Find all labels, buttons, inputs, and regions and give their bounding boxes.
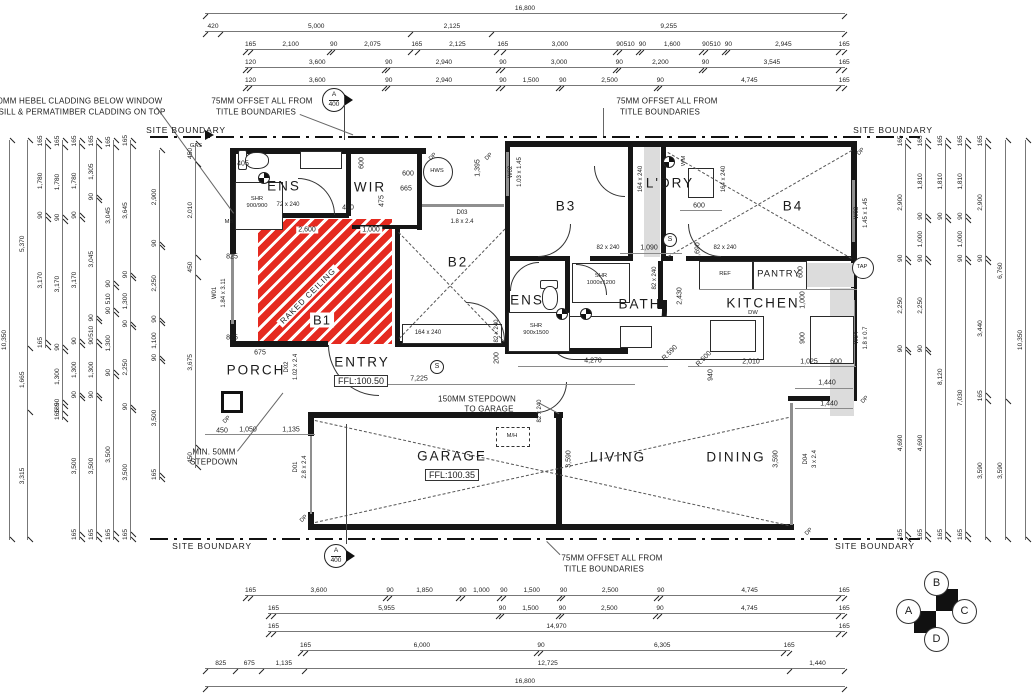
dim-value: 2,010 — [186, 164, 195, 257]
dimension-column: 1653,170901,780165 — [36, 140, 46, 348]
smoke-alarm-marker: S — [663, 233, 677, 247]
floor-waste-icon — [663, 156, 675, 168]
dim-value: 165 — [53, 140, 62, 147]
dim-value: 10,350 — [1016, 140, 1025, 540]
dim-value: 90 — [104, 283, 113, 287]
dim-value: 3,675 — [186, 277, 195, 447]
inner-dim: 600 — [359, 157, 366, 169]
dimension-column: 1657,030901,000901,810165 — [956, 140, 966, 540]
dim-value: 4,745 — [660, 604, 839, 613]
dim-value: 1,810 — [956, 146, 965, 216]
dim-value: 3,170 — [70, 219, 79, 342]
dim-value: 2,900 — [896, 146, 905, 258]
inner-dim: 900 — [800, 332, 807, 344]
downpipe-label: DP — [222, 415, 232, 425]
shower-label: SHR — [595, 273, 607, 279]
dim-value: 3,500 — [87, 398, 96, 533]
dim-value: 2,250 — [916, 262, 925, 349]
door-leaf-size: 82 x 240 — [713, 245, 736, 251]
inner-dim: 600 — [830, 359, 842, 366]
dim-value: 165 — [104, 140, 113, 147]
room-pantry: PANTRY — [757, 269, 801, 280]
dim-value: 165 — [896, 140, 905, 146]
dimension-column: 1654,690902,250902,900165 — [896, 140, 906, 540]
window-w04: W04 — [854, 332, 860, 344]
shower-size: 900x1500 — [523, 330, 548, 336]
shower-label: SHR — [251, 196, 263, 202]
hws-label: HWS — [430, 168, 444, 174]
inner-dim: 1,690 — [695, 242, 702, 260]
wall — [308, 524, 794, 530]
offset-note-bottom-line2: TITLE BOUNDARIES — [564, 565, 644, 574]
dimension-column: 10,350 — [0, 140, 10, 540]
dimension-column: 1653,500901,30090510903,045901,305165 — [87, 140, 97, 540]
floor-waste-icon — [556, 308, 568, 320]
dim-value: 14,970 — [274, 622, 839, 631]
section-letter: A — [329, 91, 339, 100]
section-cut-line — [346, 424, 347, 544]
dim-value: 6,305 — [541, 641, 784, 650]
dim-value: 5,955 — [274, 604, 499, 613]
room-ldry: L'DRY — [646, 176, 694, 191]
elevation-d: D — [924, 627, 949, 652]
inner-dim: 675 — [254, 350, 266, 357]
dim-value: 2,075 — [333, 40, 411, 49]
dimension-column: 165185901,300903,170901,780165 — [53, 140, 63, 420]
site-boundary-line-bottom — [150, 538, 920, 540]
door-swing-arc — [328, 345, 379, 396]
dim-value: 4,745 — [660, 76, 839, 85]
dimension-column: 1653,500901,30090510903,045165 — [104, 140, 114, 540]
room-kitchen: KITCHEN — [726, 296, 799, 311]
dim-value: 2,945 — [728, 40, 839, 49]
dimension-row: 4205,0002,1259,255 — [205, 22, 845, 32]
dimension-column: 3,5901653,440902,900165 — [976, 140, 986, 540]
door-d04: D04 — [803, 453, 809, 464]
dimension-row: 8256751,13512,7251,440 — [205, 659, 845, 669]
dim-value: 10,350 — [0, 140, 9, 540]
section-number: 400 — [329, 101, 340, 109]
dim-value: 3,500 — [121, 410, 130, 534]
dim-value: 1,300 — [53, 351, 62, 403]
dimension-row: 16,800 — [205, 4, 845, 14]
dimension-row: 16514,970165 — [268, 622, 845, 632]
elevation-c: C — [952, 599, 977, 624]
window-w01: W01 — [212, 287, 218, 299]
dim-value: 1,000 — [463, 586, 501, 595]
dim-value: 1,810 — [916, 146, 925, 216]
vanity-ens1 — [300, 151, 342, 169]
floor-plan-canvas: A400 A400 B A C D 50MM HEBEL CLADDING BE… — [0, 0, 1033, 693]
dim-value: 1,500 — [502, 604, 559, 613]
dim-value: 2,250 — [150, 247, 159, 320]
dim-value: 1,440 — [790, 659, 845, 668]
dw-label: DW — [748, 310, 758, 316]
wall — [505, 141, 857, 147]
dim-value: 510 — [706, 40, 725, 49]
dim-value: 165 — [839, 76, 845, 85]
dim-value: 90 — [104, 372, 113, 376]
dim-value: 1,100 — [150, 323, 159, 359]
inner-dim: 665 — [400, 186, 412, 193]
inner-dim: 405 — [237, 161, 249, 168]
dim-value: 3,045 — [104, 147, 113, 283]
dim-value: 16,800 — [205, 4, 845, 13]
dim-line — [620, 253, 682, 254]
inner-dim: 940 — [708, 369, 715, 381]
door-swing-arc — [538, 224, 571, 257]
garage-stepdown-note-line1: 150MM STEPDOWN — [438, 395, 516, 404]
dim-value: 90 — [916, 216, 925, 219]
toilet-pan — [542, 286, 558, 310]
dim-value: 510 — [620, 40, 639, 49]
leader-line — [300, 114, 354, 135]
offset-note-topleft-line1: 75MM OFFSET ALL FROM — [211, 97, 312, 106]
dim-value: 3,600 — [251, 586, 386, 595]
dim-value: 90 — [104, 310, 113, 314]
dim-value: 3,500 — [150, 361, 159, 474]
dim-value: 1,300 — [87, 345, 96, 395]
dim-value: 1,850 — [390, 586, 459, 595]
window-w01-size: 1.84 x 3.11 — [221, 278, 227, 307]
dim-value: 165 — [70, 534, 79, 540]
dim-value: 165 — [956, 140, 965, 146]
door-d03: D03 — [456, 210, 467, 216]
door-leaf-size: 72 x 240 — [276, 202, 299, 208]
dim-value: 90 — [70, 341, 79, 344]
dim-value: 90 — [87, 395, 96, 398]
ceiling-dash-line — [315, 420, 789, 526]
dim-value: 2,940 — [388, 58, 499, 67]
dim-value: 90 — [121, 407, 130, 410]
dim-value: 90 — [150, 358, 159, 361]
inner-dim: 450 — [216, 428, 228, 435]
dim-value: 165 — [976, 140, 985, 146]
dim-value: 1,810 — [936, 146, 945, 216]
section-marker-top: A400 — [322, 88, 353, 112]
dim-value: 90 — [956, 216, 965, 219]
dim-value: 510 — [87, 321, 96, 341]
offset-note-bottom-line1: 75MM OFFSET ALL FROM — [561, 554, 662, 563]
elevation-b: B — [924, 571, 949, 596]
room-b1: B1 — [310, 313, 334, 328]
floor-waste-icon — [580, 308, 592, 320]
dim-value: 450 — [186, 143, 195, 164]
dimension-column: 1658,120901,810165 — [936, 140, 946, 540]
dim-value: 90 — [70, 215, 79, 218]
cooktop-oven — [810, 316, 854, 364]
shower-size: 900/900 — [247, 203, 268, 209]
room-ens1: ENS — [267, 179, 301, 194]
dim-value: 2,250 — [121, 327, 130, 407]
dim-value: 510 — [104, 287, 113, 310]
dim-value: 1,500 — [504, 586, 560, 595]
dimension-row: 1653,600901,850901,000901,500902,500904,… — [245, 586, 845, 596]
dimension-column: 10,350 — [1016, 140, 1026, 540]
cladding-note-line2: SILL & PERMATIMBER CLADDING ON TOP — [0, 108, 165, 117]
shaded-bench — [644, 147, 660, 257]
offset-note-topright-line1: 75MM OFFSET ALL FROM — [616, 97, 717, 106]
vanity-bath — [620, 326, 652, 348]
dim-value: 1,300 — [104, 314, 113, 372]
room-entry: ENTRY — [334, 355, 390, 370]
dim-value: 1,600 — [642, 40, 702, 49]
dim-value: 2,500 — [562, 604, 656, 613]
room-ens2: ENS — [510, 293, 544, 308]
dim-b1: 2,600 — [296, 227, 318, 234]
room-b2: B2 — [448, 255, 469, 270]
door-d03-size: 1.8 x 2.4 — [450, 219, 473, 225]
dim-value: 3,545 — [705, 58, 839, 67]
inner-dim: 1,440 — [818, 380, 836, 387]
section-letter: A — [331, 547, 341, 556]
dim-value: 90 — [53, 403, 62, 407]
dim-value: 90 — [36, 215, 45, 218]
dim-value: 165 — [936, 534, 945, 540]
dim-line — [795, 388, 853, 389]
site-boundary-label: SITE BOUNDARY — [853, 125, 933, 135]
dim-value: 6,760 — [996, 140, 1005, 401]
dim-value: 165 — [70, 140, 79, 146]
robe-size: 164 x 240 — [721, 166, 727, 192]
wall — [556, 416, 562, 526]
dim-value: 165 — [896, 534, 905, 540]
elevation-compass: B A C D — [896, 571, 976, 651]
dimension-column: 1654,690902,250901,000901,810165 — [916, 140, 926, 540]
dim-value: 90 — [53, 347, 62, 351]
dim-b1: 1,000 — [360, 227, 382, 234]
dim-value: 165 — [87, 534, 96, 540]
dim-value: 3,045 — [87, 200, 96, 318]
dim-value: 185 — [53, 406, 62, 413]
dim-value: 165 — [839, 622, 845, 631]
leader-line — [603, 108, 604, 136]
dim-value: 1,500 — [503, 76, 559, 85]
dim-value: 90 — [87, 197, 96, 200]
dim-value: 165 — [36, 140, 45, 146]
inner-dim: 1,090 — [640, 245, 658, 252]
window-w03-size: 1.45 x 1.45 — [863, 198, 869, 228]
room-living: LIVING — [590, 450, 646, 465]
downpipe-label: DP — [856, 147, 866, 157]
section-arrow-icon — [344, 94, 353, 106]
inner-dim: 600 — [798, 266, 805, 278]
dim-value: 165 — [936, 140, 945, 146]
wall — [308, 512, 314, 530]
dimension-row: 1203,600902,940903,000902,200903,545165 — [245, 58, 845, 68]
manhole-label: M/H — [507, 433, 518, 439]
dim-value: 90 — [896, 349, 905, 352]
site-boundary-label: SITE BOUNDARY — [172, 541, 252, 551]
dim-value: 3,170 — [36, 219, 45, 342]
dim-value: 90 — [150, 244, 159, 247]
dimension-column: 1653,500902,250901,300903,645165 — [121, 140, 131, 540]
dim-line — [688, 366, 856, 367]
inner-dim: 4,270 — [584, 358, 602, 365]
inner-dim: 1,000 — [800, 291, 807, 309]
dim-line — [518, 366, 668, 367]
downpipe-label: DP — [804, 527, 814, 537]
dim-value: 165 — [839, 586, 845, 595]
window-glazing — [231, 254, 234, 324]
dim-value: 90 — [87, 341, 96, 344]
dim-value: 2,940 — [388, 76, 499, 85]
dimension-column: 1653,500901,300903,170901,780165 — [70, 140, 80, 540]
dim-value: 6,000 — [306, 641, 537, 650]
inner-dim: 825 — [226, 254, 238, 261]
dim-value: 165 — [53, 413, 62, 420]
dim-value: 90 — [956, 258, 965, 261]
dim-value: 675 — [236, 659, 262, 668]
dim-value: 165 — [956, 534, 965, 540]
inner-dim: 3,590 — [773, 450, 780, 468]
dim-value: 5,000 — [221, 22, 411, 31]
inner-dim: 600 — [693, 203, 705, 210]
door-swing-arc — [510, 262, 539, 291]
dim-value: 1,000 — [956, 220, 965, 259]
room-dining: DINING — [706, 450, 765, 465]
inner-dim: 1,025 — [800, 359, 818, 366]
room-b4: B4 — [783, 199, 804, 214]
robe-size: 164 x 240 — [638, 166, 644, 192]
dim-value: 450 — [186, 447, 195, 468]
dim-value: 165 — [839, 604, 845, 613]
ffl-garage: FFL:100.35 — [425, 469, 479, 481]
dim-value: 1,300 — [121, 278, 130, 324]
dim-value: 165 — [121, 140, 130, 146]
dim-value: 1,780 — [70, 146, 79, 215]
room-wir: WIR — [354, 180, 386, 195]
window-w04-size: 1.8 x 0.7 — [863, 326, 869, 349]
dim-value: 3,315 — [18, 412, 27, 540]
inner-dim: 1,135 — [282, 427, 300, 434]
dim-value: 165 — [87, 140, 96, 146]
inner-dim: 410 — [342, 205, 354, 212]
dim-value: 2,500 — [562, 76, 656, 85]
inner-dim: 2,430 — [677, 287, 684, 305]
dim-value: 165 — [839, 58, 845, 67]
dim-value: 165 — [150, 475, 159, 480]
offset-note-topleft-line2: TITLE BOUNDARIES — [216, 108, 296, 117]
dim-value: 12,725 — [305, 659, 790, 668]
dim-value: 3,500 — [104, 376, 113, 532]
shaded-bench — [806, 263, 854, 287]
dim-value: 165 — [36, 342, 45, 348]
garage-stepdown-note-line2: TO GARAGE — [464, 405, 513, 414]
inner-dim: 600 — [402, 171, 414, 178]
dim-value: 3,440 — [976, 262, 985, 395]
site-boundary-line-top — [150, 136, 920, 138]
dim-value: 165 — [784, 641, 790, 650]
dim-value: 3,500 — [70, 398, 79, 533]
elevation-a: A — [896, 599, 921, 624]
downpipe-label: DP — [484, 152, 494, 162]
dim-value: 165 — [839, 40, 845, 49]
dim-value: 7,030 — [956, 262, 965, 534]
dim-value: 165 — [916, 534, 925, 540]
dim-value: 1,135 — [262, 659, 305, 668]
mb-label: MB — [225, 219, 234, 225]
room-b3: B3 — [556, 199, 577, 214]
dim-value: 1,780 — [36, 146, 45, 215]
dim-value: 165 — [121, 534, 130, 540]
dim-value: 4,690 — [896, 352, 905, 533]
dim-value: 3,000 — [504, 40, 617, 49]
door-d02: D02 — [284, 361, 290, 372]
dim-line — [699, 289, 857, 290]
smoke-alarm-marker: S — [430, 360, 444, 374]
dim-value: 450 — [186, 257, 195, 278]
dim-value: 5,370 — [18, 140, 27, 348]
door-swing-arc — [594, 166, 625, 197]
door-swing-arc — [298, 178, 335, 215]
dimension-row: 1203,600902,940901,500902,500904,745165 — [245, 76, 845, 86]
dim-value: 4,690 — [916, 352, 925, 533]
dim-value: 4,745 — [661, 586, 839, 595]
dim-value: 90 — [70, 395, 79, 398]
dimension-row: 1652,100902,0751652,1251653,00090510901,… — [245, 40, 845, 50]
dim-value: 2,100 — [251, 40, 330, 49]
section-marker-bottom: A400 — [324, 544, 355, 568]
inner-dim: 1,050 — [239, 427, 257, 434]
inner-dim: 1,395 — [475, 159, 482, 177]
inner-dim: 1,440 — [820, 401, 838, 408]
dim-value: 90 — [53, 217, 62, 221]
dim-value: 3,590 — [976, 401, 985, 540]
leader-line — [237, 393, 283, 452]
dimension-column: 4503,6754502,010450 — [186, 143, 196, 468]
shower-label: SHR — [530, 323, 542, 329]
site-boundary-label: SITE BOUNDARY — [835, 541, 915, 551]
dim-value: 90 — [121, 324, 130, 327]
dim-value: 2,500 — [563, 586, 657, 595]
dim-value: 90 — [916, 349, 925, 352]
inner-dim: 200 — [494, 352, 501, 364]
dimension-row: 1656,000906,305165 — [300, 641, 790, 651]
dim-value: 90 — [87, 318, 96, 321]
dim-value: 2,200 — [619, 58, 702, 67]
dim-line — [795, 408, 853, 409]
porch-post — [221, 391, 243, 413]
wall — [417, 152, 422, 230]
dimension-column: 1653,500901,100902,250902,900 — [150, 150, 160, 480]
dim-value: 90 — [916, 258, 925, 261]
dim-value: 1,300 — [70, 345, 79, 395]
room-porch: PORCH — [227, 363, 286, 378]
robe-size: 164 x 240 — [415, 330, 441, 336]
section-cut-line — [344, 96, 345, 140]
dim-value: 2,900 — [150, 150, 159, 244]
wall — [395, 227, 400, 347]
dim-value: 9,255 — [492, 22, 845, 31]
wall — [628, 141, 633, 261]
dim-value: 1,665 — [18, 348, 27, 412]
dim-value: 16,800 — [205, 677, 845, 686]
dim-value: 90 — [936, 216, 945, 219]
dim-value: 3,645 — [121, 146, 130, 275]
shower-size: 1000x1200 — [587, 280, 616, 286]
ref-label: REF — [719, 271, 731, 277]
inner-dim: 7,225 — [410, 376, 428, 383]
door-d01: D01 — [293, 461, 299, 472]
dim-value: 1,000 — [916, 220, 925, 259]
window-glazing — [790, 403, 793, 525]
dim-value: 90 — [976, 258, 985, 261]
door-d01-size: 2.8 x 2.4 — [302, 455, 308, 478]
dimension-column: 3,3151,6655,370 — [18, 140, 28, 540]
ceiling-dash-line — [315, 417, 789, 523]
dim-value: 165 — [104, 533, 113, 540]
